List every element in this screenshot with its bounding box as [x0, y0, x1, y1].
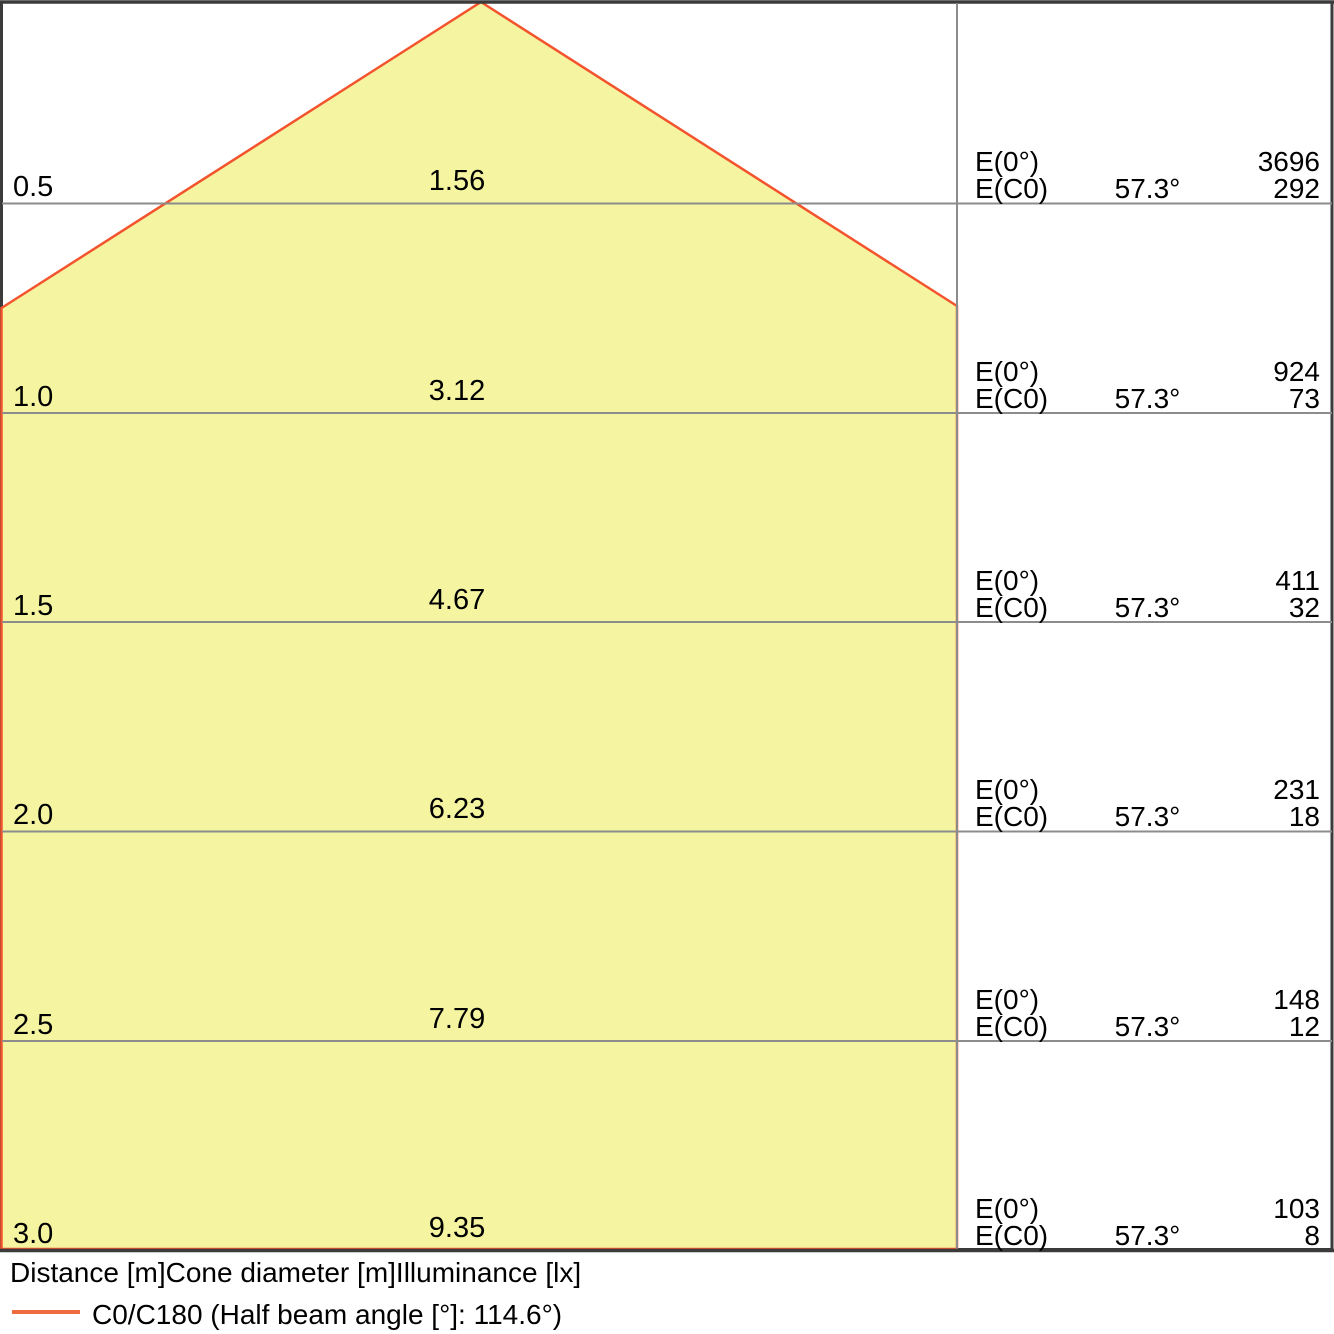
e0-label: E(0°) [975, 358, 1085, 385]
illuminance-cell-3-0: E(0°) 103 E(C0) 57.3° 8 [957, 1195, 1332, 1249]
ec0-label: E(C0) [975, 1222, 1085, 1249]
ec0-value: 73 [1210, 385, 1320, 412]
illuminance-cell-2-0: E(0°) 231 E(C0) 57.3° 18 [957, 776, 1332, 830]
e0-value: 3696 [1210, 148, 1320, 175]
ec0-label: E(C0) [975, 803, 1085, 830]
ec0-row: E(C0) 57.3° 8 [975, 1222, 1320, 1249]
e0-value: 411 [1210, 567, 1320, 594]
ec0-value: 8 [1210, 1222, 1320, 1249]
cone-diameter-value-3-0: 9.35 [357, 1212, 557, 1244]
cone-diameter-value-1-5: 4.67 [357, 584, 557, 616]
ec0-label: E(C0) [975, 385, 1085, 412]
illuminance-cell-1-5: E(0°) 411 E(C0) 57.3° 32 [957, 567, 1332, 621]
half-angle-value: 57.3° [1085, 594, 1210, 621]
illuminance-cell-0-5: E(0°) 3696 E(C0) 57.3° 292 [957, 148, 1332, 202]
e0-row: E(0°) 3696 [975, 148, 1320, 175]
cone-diameter-value-1-0: 3.12 [357, 375, 557, 407]
legend-line-swatch-icon [12, 1310, 80, 1314]
ec0-value: 32 [1210, 594, 1320, 621]
illuminance-cell-1-0: E(0°) 924 E(C0) 57.3° 73 [957, 358, 1332, 412]
ec0-label: E(C0) [975, 175, 1085, 202]
legend-label: C0/C180 (Half beam angle [°]: 114.6°) [92, 1300, 562, 1330]
e0-value: 103 [1210, 1195, 1320, 1222]
e0-row: E(0°) 103 [975, 1195, 1320, 1222]
cone-diameter-value-2-5: 7.79 [357, 1003, 557, 1035]
half-angle-value: 57.3° [1085, 175, 1210, 202]
ec0-row: E(C0) 57.3° 32 [975, 594, 1320, 621]
e0-label: E(0°) [975, 986, 1085, 1013]
e0-label: E(0°) [975, 148, 1085, 175]
distance-label-1-5: 1.5 [13, 590, 53, 622]
ec0-label: E(C0) [975, 594, 1085, 621]
ec0-row: E(C0) 57.3° 18 [975, 803, 1320, 830]
half-angle-value: 57.3° [1085, 803, 1210, 830]
half-angle-value: 57.3° [1085, 385, 1210, 412]
half-angle-value: 57.3° [1085, 1013, 1210, 1040]
ec0-value: 292 [1210, 175, 1320, 202]
e0-row: E(0°) 411 [975, 567, 1320, 594]
e0-value: 148 [1210, 986, 1320, 1013]
distance-label-2-0: 2.0 [13, 799, 53, 831]
ec0-label: E(C0) [975, 1013, 1085, 1040]
distance-label-2-5: 2.5 [13, 1009, 53, 1041]
e0-row: E(0°) 924 [975, 358, 1320, 385]
ec0-value: 12 [1210, 1013, 1320, 1040]
distance-label-0-5: 0.5 [13, 171, 53, 203]
illuminance-cell-2-5: E(0°) 148 E(C0) 57.3° 12 [957, 986, 1332, 1040]
e0-row: E(0°) 148 [975, 986, 1320, 1013]
distance-label-1-0: 1.0 [13, 381, 53, 413]
distance-label-3-0: 3.0 [13, 1218, 53, 1250]
ec0-value: 18 [1210, 803, 1320, 830]
ec0-row: E(C0) 57.3° 73 [975, 385, 1320, 412]
e0-label: E(0°) [975, 1195, 1085, 1222]
ec0-row: E(C0) 57.3° 12 [975, 1013, 1320, 1040]
e0-label: E(0°) [975, 776, 1085, 803]
cone-diagram: 0.5 1.56 E(0°) 3696 E(C0) 57.3° 292 1.0 … [0, 0, 1334, 1334]
e0-label: E(0°) [975, 567, 1085, 594]
ec0-row: E(C0) 57.3° 292 [975, 175, 1320, 202]
cone-diameter-value-2-0: 6.23 [357, 793, 557, 825]
e0-row: E(0°) 231 [975, 776, 1320, 803]
cone-diameter-value-0-5: 1.56 [357, 165, 557, 197]
half-angle-value: 57.3° [1085, 1222, 1210, 1249]
e0-value: 924 [1210, 358, 1320, 385]
axes-caption: Distance [m]Cone diameter [m]Illuminance… [10, 1258, 581, 1288]
e0-value: 231 [1210, 776, 1320, 803]
